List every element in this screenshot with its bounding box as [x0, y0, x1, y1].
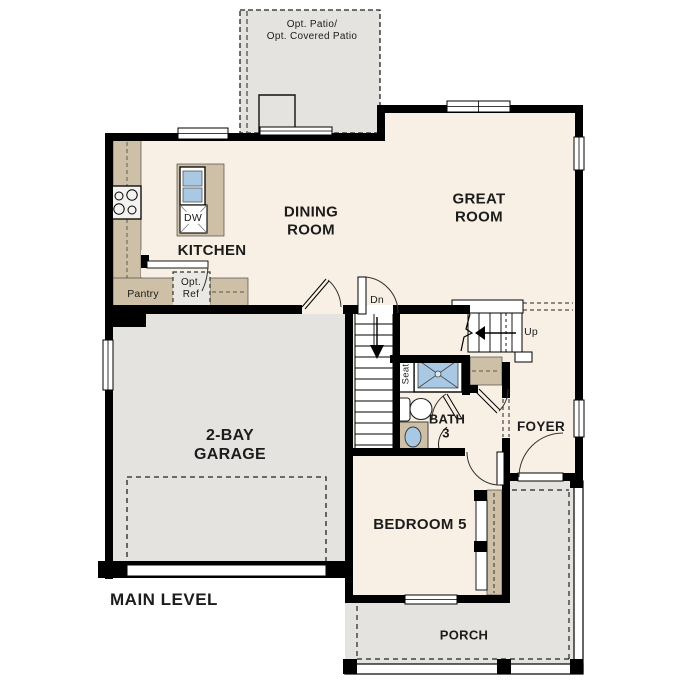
- label-kitchen: KITCHEN: [178, 242, 247, 260]
- label-garage: 2-BAY GARAGE: [194, 427, 266, 465]
- porch-post: [570, 476, 583, 488]
- label-stairs-up: Up: [524, 326, 538, 338]
- porch-edge-right: [574, 481, 583, 673]
- label-opt-ref: Opt. Ref: [181, 277, 201, 301]
- label-foyer: FOYER: [517, 419, 565, 435]
- label-dining-room: DINING ROOM: [284, 203, 338, 238]
- front-door-threshold: [518, 473, 563, 481]
- label-great-room: GREAT ROOM: [453, 190, 506, 225]
- label-main-level: MAIN LEVEL: [110, 590, 218, 610]
- closet-jamb: [474, 490, 487, 501]
- wall-corner-block: [106, 305, 146, 327]
- porch-post: [343, 659, 357, 674]
- garage-door-panel: [127, 565, 326, 576]
- sink-basin: [183, 171, 202, 186]
- shower-drain-icon: [435, 371, 441, 377]
- stair-newel: [515, 352, 532, 362]
- stairs-down: [355, 313, 393, 452]
- garage-door-opening: [302, 305, 343, 314]
- bath-sink-basin: [405, 427, 421, 447]
- floor-plan-drawing: [0, 0, 687, 687]
- label-opt-patio: Opt. Patio/ Opt. Covered Patio: [267, 19, 357, 43]
- label-dishwasher: DW: [183, 212, 203, 224]
- wall-bedroom-top: [348, 448, 465, 456]
- wall-stair-top: [393, 305, 470, 314]
- wall-closet-stub: [462, 385, 478, 393]
- label-stairs-down: Dn: [370, 294, 384, 306]
- sink-basin: [183, 188, 202, 202]
- porch-post: [497, 659, 511, 674]
- wall-foyer-left-upper: [502, 362, 510, 398]
- cooktop: [111, 186, 141, 219]
- label-pantry: Pantry: [127, 288, 159, 300]
- bedroom-door-leaf: [497, 452, 504, 485]
- floor-plan-page: Opt. Patio/ Opt. Covered Patio KITCHEN D…: [0, 0, 687, 687]
- porch-post: [570, 659, 583, 674]
- label-porch: PORCH: [440, 627, 488, 642]
- closet-jamb: [474, 541, 487, 552]
- wall-stair-bath: [393, 313, 400, 455]
- bedroom-door-opening: [465, 448, 502, 456]
- stair-door-leaf: [358, 277, 366, 314]
- label-bath-number: 3: [442, 425, 450, 440]
- wall-top-left: [105, 133, 385, 141]
- bedroom-closet: [474, 490, 502, 595]
- wall-bath-top: [390, 355, 470, 363]
- porch-edge-bottom: [345, 664, 583, 674]
- label-bedroom5: BEDROOM 5: [373, 516, 467, 534]
- label-shower-seat: Seat: [400, 364, 411, 385]
- kitchen-door-leaf: [147, 261, 208, 268]
